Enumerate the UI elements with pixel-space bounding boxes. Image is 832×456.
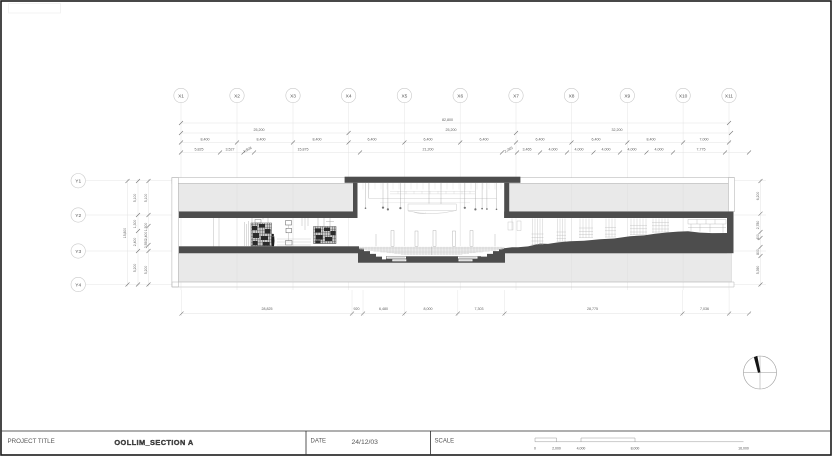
svg-text:7,775: 7,775 [697,148,706,152]
svg-text:5,390: 5,390 [756,266,760,275]
svg-text:4,000: 4,000 [577,446,586,450]
svg-text:X9: X9 [624,93,630,99]
svg-text:4,000: 4,000 [549,148,558,152]
svg-text:25,200: 25,200 [254,128,265,132]
svg-text:8,400: 8,400 [257,138,266,142]
svg-text:DATE: DATE [311,439,327,445]
svg-text:Y2: Y2 [75,213,81,219]
svg-text:X2: X2 [234,93,240,99]
svg-text:3,527: 3,527 [226,148,235,152]
svg-text:6,400: 6,400 [368,138,377,142]
svg-text:4,000: 4,000 [655,148,664,152]
svg-text:5,100: 5,100 [144,194,148,203]
svg-text:8,400: 8,400 [647,138,656,142]
svg-text:28,775: 28,775 [587,307,598,311]
svg-text:6,480: 6,480 [379,307,388,311]
svg-text:4,000: 4,000 [602,148,611,152]
svg-text:Y1: Y1 [75,179,81,185]
svg-text:2,400: 2,400 [133,238,137,247]
svg-text:8,000: 8,000 [631,446,640,450]
svg-text:X11: X11 [725,93,734,99]
svg-text:X1: X1 [178,93,184,99]
svg-text:7,303: 7,303 [475,307,484,311]
svg-text:2,780: 2,780 [756,221,760,230]
svg-text:7,036: 7,036 [700,307,709,311]
svg-text:5,825: 5,825 [195,148,204,152]
svg-text:8,000: 8,000 [424,307,433,311]
svg-text:15,875: 15,875 [298,148,309,152]
svg-text:6,400: 6,400 [536,138,545,142]
svg-text:28,825: 28,825 [262,307,273,311]
svg-text:Y3: Y3 [75,249,81,255]
svg-text:2,000: 2,000 [552,446,561,450]
svg-text:2,400: 2,400 [144,232,148,241]
svg-text:5,100: 5,100 [133,194,137,203]
svg-text:X6: X6 [457,93,463,99]
svg-text:21,200: 21,200 [423,148,434,152]
svg-text:920: 920 [354,307,360,311]
svg-text:25,200: 25,200 [446,128,457,132]
svg-text:X8: X8 [569,93,575,99]
svg-text:0: 0 [534,446,536,450]
svg-text:16,000: 16,000 [738,446,749,450]
svg-text:X7: X7 [513,93,519,99]
svg-text:24/12/03: 24/12/03 [352,439,379,446]
svg-text:6,200: 6,200 [756,192,760,201]
svg-text:5,200: 5,200 [133,264,137,273]
svg-text:7,000: 7,000 [700,138,709,142]
svg-text:6,400: 6,400 [592,138,601,142]
svg-text:Y4: Y4 [75,282,81,288]
svg-text:4,000: 4,000 [575,148,584,152]
svg-text:5,200: 5,200 [144,266,148,275]
svg-text:1,300: 1,300 [133,220,137,229]
svg-text:X5: X5 [401,93,407,99]
svg-text:OOLLIM_SECTION A: OOLLIM_SECTION A [114,438,193,447]
svg-text:SCALE: SCALE [435,439,455,445]
svg-text:6,400: 6,400 [424,138,433,142]
svg-text:6,400: 6,400 [480,138,489,142]
svg-text:8,400: 8,400 [313,138,322,142]
svg-text:X3: X3 [290,93,296,99]
svg-text:800: 800 [756,249,760,255]
svg-text:4,000: 4,000 [628,148,637,152]
svg-text:1,500: 1,500 [144,223,148,232]
svg-text:PROJECT TITLE: PROJECT TITLE [8,438,55,445]
svg-text:32,200: 32,200 [612,128,623,132]
svg-text:15,800: 15,800 [123,228,127,238]
svg-text:X4: X4 [346,93,352,99]
svg-text:3,465: 3,465 [523,148,532,152]
svg-text:8,400: 8,400 [201,138,210,142]
svg-text:X10: X10 [679,93,688,99]
svg-text:82,800: 82,800 [442,118,453,122]
svg-text:400: 400 [756,234,760,240]
